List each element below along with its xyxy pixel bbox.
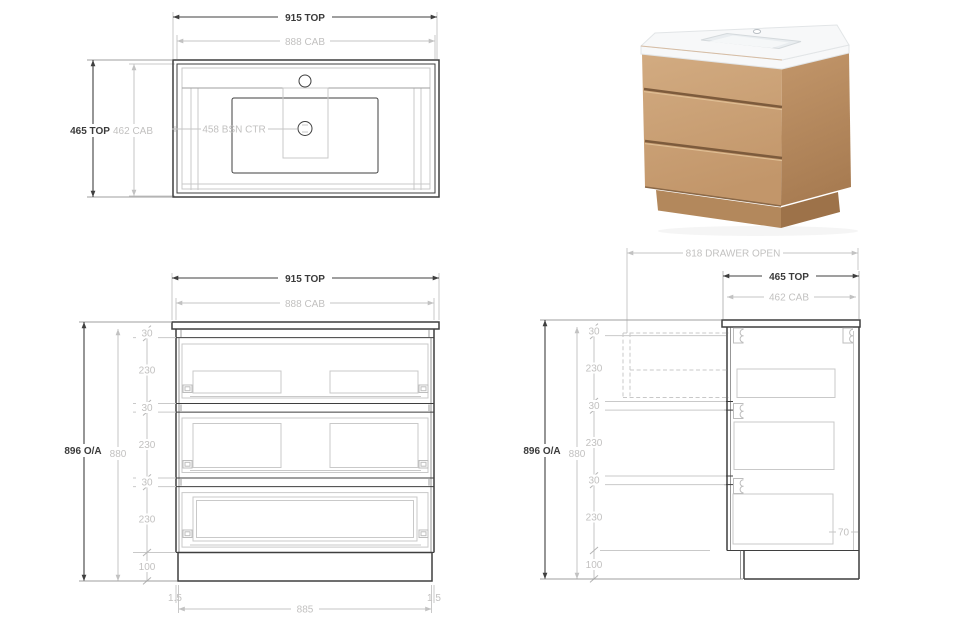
side-dim-segments: 30 230 30 230 30 230 100	[581, 324, 726, 583]
svg-text:100: 100	[586, 560, 603, 571]
front-drawer2-runner-right	[419, 461, 428, 469]
svg-text:915 TOP: 915 TOP	[285, 13, 325, 24]
render-side-face	[781, 53, 851, 206]
svg-text:30: 30	[141, 329, 153, 340]
side-cabinet	[724, 327, 859, 579]
svg-text:230: 230	[586, 364, 603, 375]
front-drawer3-runner-right	[419, 530, 428, 538]
side-drawer3-runner-front	[734, 479, 744, 494]
render-floor-shadow	[658, 226, 858, 236]
svg-text:30: 30	[588, 401, 600, 412]
front-dim-internal-width: 1.5 1.5 885	[168, 585, 441, 616]
render-front-face	[642, 54, 782, 206]
svg-text:818 DRAWER OPEN: 818 DRAWER OPEN	[686, 249, 781, 260]
svg-text:1.5: 1.5	[427, 593, 441, 604]
front-dim-cab-height: 880	[105, 329, 131, 581]
front-drawer3-runner-left	[183, 530, 192, 538]
svg-text:880: 880	[569, 449, 586, 460]
svg-text:30: 30	[588, 327, 600, 338]
svg-text:896 O/A: 896 O/A	[523, 446, 560, 457]
front-view: 915 TOP 888 CAB	[59, 271, 441, 616]
front-cabinet	[176, 329, 434, 581]
render-faucet-hole	[753, 30, 760, 34]
technical-drawing-sheet: 915 TOP 888 CAB 465 TOP 462 CAB	[0, 0, 959, 637]
svg-text:1.5: 1.5	[168, 593, 182, 604]
svg-text:230: 230	[139, 366, 156, 377]
front-drawer1-runner-right	[419, 385, 428, 393]
svg-text:70: 70	[838, 528, 850, 539]
product-render	[641, 25, 858, 236]
plan-faucet-hole	[299, 75, 311, 87]
side-drawer1-runner-front	[734, 328, 744, 343]
side-drawer1-runner-back	[843, 328, 853, 343]
svg-text:462 CAB: 462 CAB	[113, 126, 153, 137]
plan-dim-depth-top: 465 TOP	[67, 60, 114, 197]
front-drawer2-runner-left	[183, 461, 192, 469]
svg-text:230: 230	[586, 438, 603, 449]
front-drawer-2	[182, 418, 428, 473]
svg-text:465 TOP: 465 TOP	[769, 272, 809, 283]
svg-text:230: 230	[139, 440, 156, 451]
front-drawer3-box	[193, 497, 417, 541]
side-drawer1-box	[737, 369, 835, 398]
front-drawer1-runner-left	[183, 385, 192, 393]
front-dim-width-cab: 888 CAB	[176, 296, 434, 310]
side-view: 818 DRAWER OPEN 465 TOP 462 CAB	[518, 247, 860, 583]
svg-text:230: 230	[139, 515, 156, 526]
front-kickboard	[178, 553, 432, 582]
plan-view: 915 TOP 888 CAB 465 TOP 462 CAB	[67, 10, 439, 197]
side-countertop	[722, 320, 860, 327]
drawing-canvas: 915 TOP 888 CAB 465 TOP 462 CAB	[0, 0, 959, 637]
svg-text:888 CAB: 888 CAB	[285, 299, 325, 310]
front-drawer1-box-right	[330, 371, 418, 393]
side-dim-depth-cab: 462 CAB	[727, 291, 856, 304]
svg-text:100: 100	[139, 562, 156, 573]
side-drawer2-box	[734, 422, 834, 470]
side-open-drawer	[623, 333, 729, 398]
plan-dim-width-cab: 888 CAB	[177, 34, 435, 48]
front-dim-width-top: 915 TOP	[172, 271, 439, 285]
svg-text:465 TOP: 465 TOP	[70, 126, 110, 137]
svg-text:880: 880	[110, 449, 127, 460]
side-dim-overall-height: 896 O/A	[518, 320, 567, 579]
svg-text:30: 30	[141, 478, 153, 489]
svg-text:458 BSN CTR: 458 BSN CTR	[202, 125, 265, 136]
svg-text:896 O/A: 896 O/A	[64, 446, 101, 457]
svg-text:230: 230	[586, 513, 603, 524]
svg-text:462 CAB: 462 CAB	[769, 293, 809, 304]
svg-text:888 CAB: 888 CAB	[285, 37, 325, 48]
plan-dim-width-top: 915 TOP	[173, 10, 437, 24]
front-drawer-3	[182, 493, 428, 547]
front-drawer-1	[182, 344, 428, 398]
svg-text:915 TOP: 915 TOP	[285, 274, 325, 285]
front-dim-segments: 30 230 30 230 30 230 100	[133, 326, 176, 585]
plan-dim-depth-cab: 462 CAB	[112, 64, 154, 196]
side-drawer2-runner-front	[734, 404, 744, 419]
front-drawer2-box-right	[330, 424, 418, 468]
svg-text:30: 30	[588, 476, 600, 487]
plan-drain-hole	[298, 122, 312, 136]
front-drawer1-box-left	[193, 371, 281, 393]
front-drawer2-box-left	[193, 424, 281, 468]
svg-text:885: 885	[297, 605, 314, 616]
side-drawer3-box	[733, 494, 833, 544]
front-countertop	[172, 322, 439, 329]
svg-text:30: 30	[141, 403, 153, 414]
